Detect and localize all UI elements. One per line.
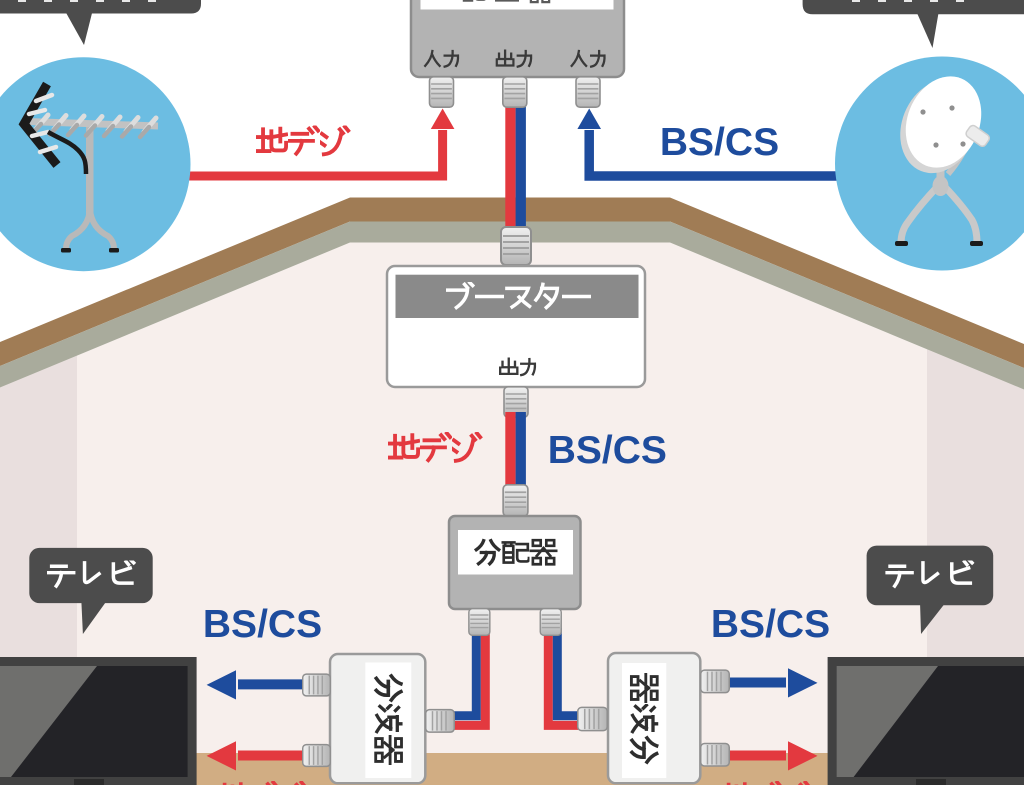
svg-text:BS/CS: BS/CS bbox=[711, 603, 830, 646]
svg-text:BS/CS: BS/CS bbox=[660, 121, 779, 164]
svg-text:BS/CS: BS/CS bbox=[548, 429, 667, 472]
svg-text:BS/CS: BS/CS bbox=[203, 603, 322, 646]
